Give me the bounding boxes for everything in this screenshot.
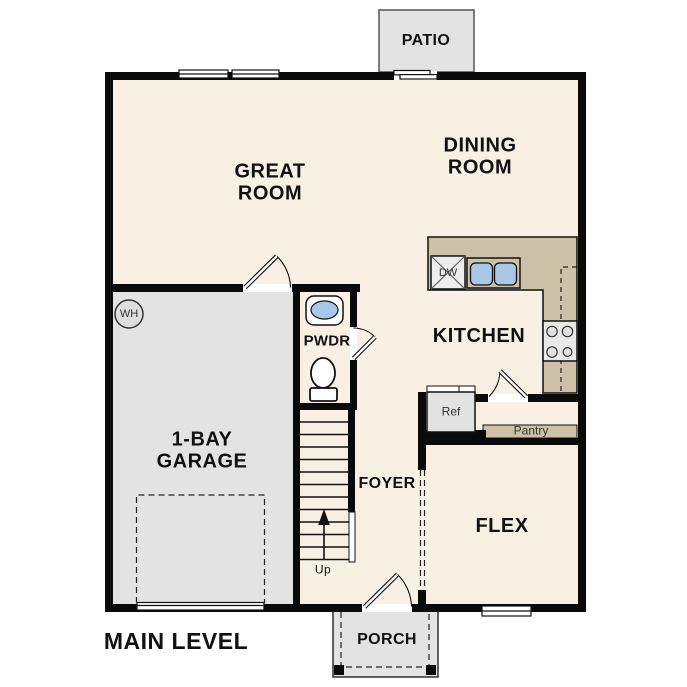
- wall-powder-east-upper: [350, 285, 357, 327]
- flex-window: [482, 606, 531, 616]
- wall-powder-east-lower: [350, 360, 357, 410]
- great-room-label: GREAT ROOM: [218, 161, 322, 206]
- porch-label: PORCH: [342, 631, 432, 649]
- wall-east: [578, 72, 586, 612]
- toilet: [310, 358, 337, 401]
- dining-room-label: DINING ROOM: [430, 135, 530, 180]
- wall-flex-west-lower: [418, 590, 426, 612]
- wall-flex-north: [418, 438, 578, 445]
- great-room-window: [232, 70, 279, 78]
- stair-railing: [349, 512, 355, 562]
- wall-north: [105, 72, 586, 80]
- floor-plan: GREAT ROOM DINING ROOM KITCHEN 1-BAY GAR…: [0, 0, 687, 687]
- wall-stair-east: [348, 403, 355, 512]
- garage-overhead-door: [137, 603, 264, 611]
- great-room-window: [179, 70, 228, 78]
- patio-label: PATIO: [386, 32, 466, 50]
- kitchen-label: KITCHEN: [409, 325, 549, 347]
- flex-label: FLEX: [457, 515, 547, 537]
- patio-sliding-door: [394, 71, 437, 80]
- water-heater-label: WH: [120, 308, 138, 320]
- stairs-up-label: Up: [315, 563, 331, 576]
- wall-pantry-north-right: [528, 394, 578, 402]
- refrigerator-label: Ref: [442, 405, 461, 418]
- wall-stair-north: [293, 403, 355, 410]
- wall-pantry-north-left: [475, 394, 488, 402]
- dishwasher-label: DW: [439, 267, 457, 279]
- wall-flex-west-upper: [418, 438, 426, 470]
- wall-garage-north: [105, 284, 360, 292]
- pantry-label: Pantry: [514, 424, 549, 437]
- wall-west: [105, 72, 113, 612]
- kitchen-sink: [467, 258, 520, 288]
- level-title: MAIN LEVEL: [86, 629, 266, 655]
- powder-sink: [306, 296, 343, 325]
- garage-label: 1-BAY GARAGE: [146, 429, 258, 474]
- porch-post: [334, 665, 344, 675]
- powder-label: PWDR: [292, 334, 362, 351]
- foyer-label: FOYER: [347, 475, 427, 493]
- porch-post: [426, 665, 436, 675]
